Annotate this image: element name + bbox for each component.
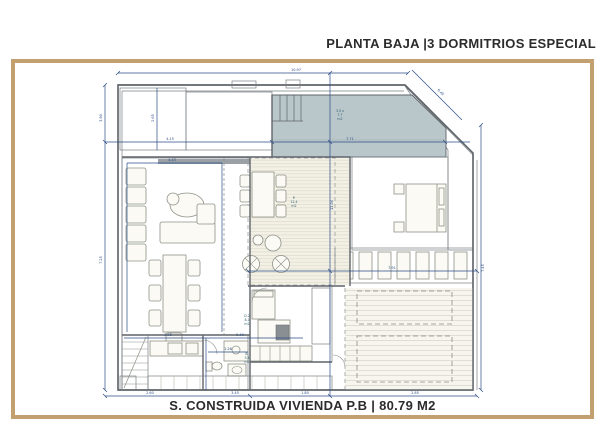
- svg-text:m2: m2: [244, 360, 249, 364]
- svg-text:1.80: 1.80: [301, 391, 309, 395]
- svg-text:4.43: 4.43: [168, 158, 176, 162]
- svg-text:11.04: 11.04: [330, 199, 334, 210]
- pool: [272, 95, 446, 157]
- svg-text:1.26: 1.26: [224, 347, 232, 351]
- svg-text:7.45: 7.45: [481, 264, 485, 272]
- door-arc: [333, 355, 345, 367]
- dining-table-outdoor: [240, 172, 286, 217]
- svg-text:10.97: 10.97: [291, 68, 301, 72]
- dining-table-indoor: [149, 255, 200, 344]
- wardrobe: [250, 346, 312, 361]
- svg-text:7.91: 7.91: [388, 266, 396, 270]
- staircase: [120, 335, 148, 390]
- svg-text:m2: m2: [291, 204, 296, 208]
- nightstand: [394, 184, 404, 194]
- nightstand: [394, 222, 404, 232]
- svg-text:m2: m2: [244, 322, 249, 326]
- svg-text:6.45: 6.45: [437, 88, 445, 96]
- living-room: [122, 158, 250, 344]
- sofa: [126, 168, 146, 261]
- terrace-deck: [186, 92, 272, 150]
- porch-terrace: [240, 158, 350, 285]
- floor-plan-sheet: PLANTA BAJA |3 DORMITRIOS ESPECIAL: [0, 0, 605, 438]
- svg-text:4.15: 4.15: [166, 137, 174, 141]
- svg-text:7.25: 7.25: [99, 256, 103, 264]
- parking-area: [345, 288, 473, 390]
- svg-text:3.45: 3.45: [231, 391, 239, 395]
- svg-text:m2: m2: [337, 117, 342, 121]
- bedroom-2: [250, 286, 345, 367]
- svg-text:2.40: 2.40: [236, 333, 244, 337]
- wall-notch: [286, 80, 300, 88]
- svg-text:3.90: 3.90: [99, 114, 103, 122]
- bath-counter: [228, 364, 246, 376]
- svg-text:3.95: 3.95: [164, 333, 172, 337]
- svg-text:7.71: 7.71: [346, 137, 354, 141]
- area-caption: S. CONSTRUIDA VIVIENDA P.B | 80.79 M2: [0, 398, 605, 413]
- svg-text:2.85: 2.85: [411, 391, 419, 395]
- svg-text:2.65: 2.65: [151, 114, 155, 122]
- svg-text:2.60: 2.60: [146, 391, 154, 395]
- master-bedroom: [352, 157, 448, 250]
- toilet-icon: [212, 362, 222, 370]
- pergola-louvers: [335, 248, 473, 283]
- paving-walkway: [148, 376, 332, 390]
- floor-plan-drawing: 10.97 6.45 3.90 7.25 4.15 7.71 7.91 11.0…: [0, 0, 605, 438]
- kitchen: [122, 335, 248, 390]
